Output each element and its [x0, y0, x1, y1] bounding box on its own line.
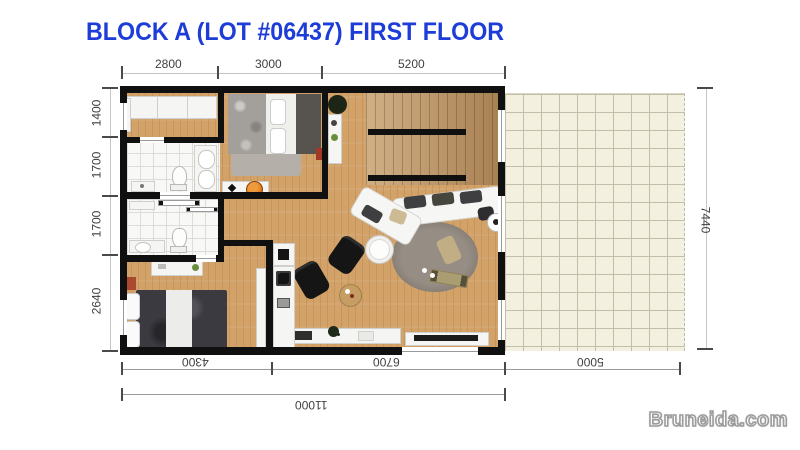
- watermark: Bruneida.com: [649, 409, 788, 432]
- bed-master-blanket: [228, 94, 268, 154]
- iwall-h: [224, 240, 272, 246]
- desk-plant: [192, 264, 199, 271]
- dim-tick: [504, 388, 506, 401]
- dim-tick: [697, 87, 713, 89]
- wall-top: [120, 86, 505, 93]
- bed-pillow: [270, 99, 286, 125]
- cup-dot: [430, 273, 435, 278]
- decor-box: [358, 331, 374, 341]
- bath1-basin: [198, 150, 215, 169]
- dim-tick: [102, 87, 118, 89]
- dim-left-2: 1700: [89, 152, 103, 179]
- dim-tick: [217, 66, 219, 79]
- iwall-v: [266, 240, 273, 350]
- dim-tick: [102, 136, 118, 138]
- dim-left-3: 1700: [89, 211, 103, 238]
- dim-right-1: 7440: [698, 207, 712, 234]
- bath2-basin: [135, 242, 151, 253]
- window-bottom: [402, 347, 478, 355]
- bed-runner: [166, 290, 192, 350]
- dim-tick: [121, 66, 123, 79]
- cooktop: [276, 271, 291, 286]
- cup-dot: [422, 268, 427, 273]
- oven: [278, 249, 289, 260]
- patio-door: [498, 196, 505, 252]
- stair-rail: [368, 175, 466, 181]
- patio-window: [498, 300, 505, 340]
- coffee-table-round: [365, 235, 394, 264]
- dim-tick: [504, 66, 506, 79]
- dim-left-line: [110, 88, 111, 351]
- door-leaf: [158, 200, 200, 206]
- dim-bottom-3: 5000: [577, 355, 604, 369]
- door-leaf: [186, 207, 218, 212]
- bed-pillow: [270, 128, 286, 154]
- faucet-dot: [140, 184, 144, 188]
- patio-door: [498, 110, 505, 162]
- dim-tick: [697, 348, 713, 350]
- dim-tick: [504, 362, 506, 375]
- dim-left-1: 1400: [89, 100, 103, 127]
- dim-bottom-2: 6700: [373, 355, 400, 369]
- dim-top-3: 5200: [398, 57, 425, 71]
- bath1-basin: [198, 170, 215, 189]
- plant-pot: [331, 134, 338, 141]
- bath2-shelf: [129, 201, 155, 210]
- toilet-tank: [170, 246, 187, 253]
- decor-dot: [345, 289, 350, 294]
- dim-tick: [121, 362, 123, 375]
- iwall-h: [124, 192, 328, 199]
- kitchen-sink: [277, 298, 290, 308]
- dim-tick: [102, 195, 118, 197]
- window-left: [120, 103, 127, 130]
- dim-left-4: 2640: [89, 288, 103, 315]
- dim-tick: [121, 388, 123, 401]
- iwall-v: [218, 192, 224, 262]
- window-left: [120, 300, 127, 335]
- bed-pillow: [125, 293, 140, 320]
- dim-tick: [102, 254, 118, 256]
- decor-dot: [350, 294, 354, 298]
- dim-top-2: 3000: [255, 57, 282, 71]
- dim-tick: [271, 362, 273, 375]
- toilet-tank: [170, 184, 187, 191]
- staircase: [366, 93, 498, 185]
- iwall-h: [124, 137, 224, 143]
- bed-master-duvet: [296, 94, 321, 154]
- dim-tick: [102, 350, 118, 352]
- toilet-bowl: [172, 166, 187, 186]
- dim-tick: [679, 362, 681, 375]
- dim-top-line: [122, 73, 505, 74]
- toilet-bowl: [172, 228, 187, 248]
- dim-total: 11000: [295, 398, 327, 412]
- floorplan-image: BLOCK A (LOT #06437) FIRST FLOOR 2800 30…: [0, 0, 800, 450]
- book-stack: [292, 331, 312, 340]
- stair-rail: [368, 129, 466, 135]
- plant-dark: [328, 95, 347, 114]
- iwall-v: [218, 93, 224, 137]
- bed-pillow: [125, 321, 140, 348]
- door-opening: [140, 137, 164, 143]
- iwall-v: [322, 93, 328, 199]
- tv-screen: [414, 335, 478, 341]
- page-title: BLOCK A (LOT #06437) FIRST FLOOR: [86, 18, 504, 47]
- wardrobe: [127, 96, 217, 119]
- dim-bottom-1: 4300: [182, 355, 209, 369]
- dim-tick: [321, 66, 323, 79]
- patio-deck: [505, 93, 685, 351]
- dim-top-1: 2800: [155, 57, 182, 71]
- dim-bottom-line: [122, 369, 680, 370]
- door-opening: [196, 255, 216, 262]
- dim-total-line: [122, 394, 505, 395]
- door-opening: [160, 192, 190, 199]
- desk-item: [158, 264, 166, 269]
- bedroom3-closet: [256, 268, 266, 350]
- bonsai-plant: [328, 326, 339, 337]
- decor-item: [331, 120, 337, 126]
